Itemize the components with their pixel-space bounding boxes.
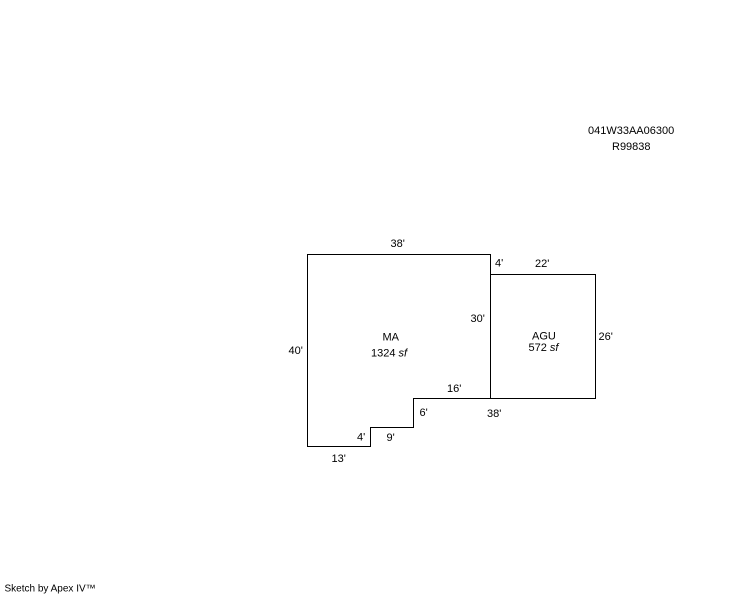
svg-text:4': 4' — [357, 432, 365, 444]
svg-text:22': 22' — [535, 258, 549, 270]
svg-text:Sketch by Apex IV™: Sketch by Apex IV™ — [5, 584, 96, 595]
svg-text:26': 26' — [599, 331, 613, 343]
svg-text:6': 6' — [420, 407, 428, 419]
svg-text:16': 16' — [447, 383, 461, 395]
svg-text:1324 sf: 1324 sf — [371, 348, 408, 360]
svg-text:041W33AA06300: 041W33AA06300 — [588, 125, 674, 137]
svg-text:572 sf: 572 sf — [529, 342, 560, 354]
svg-text:MA: MA — [383, 332, 400, 344]
svg-text:9': 9' — [387, 432, 395, 444]
svg-text:38': 38' — [487, 408, 501, 420]
svg-text:38': 38' — [391, 238, 405, 250]
svg-text:13': 13' — [332, 453, 346, 465]
svg-text:40': 40' — [289, 345, 303, 357]
svg-text:30': 30' — [471, 313, 485, 325]
svg-text:R99838: R99838 — [612, 141, 651, 153]
svg-text:AGU: AGU — [532, 331, 556, 343]
svg-text:4': 4' — [495, 258, 503, 270]
